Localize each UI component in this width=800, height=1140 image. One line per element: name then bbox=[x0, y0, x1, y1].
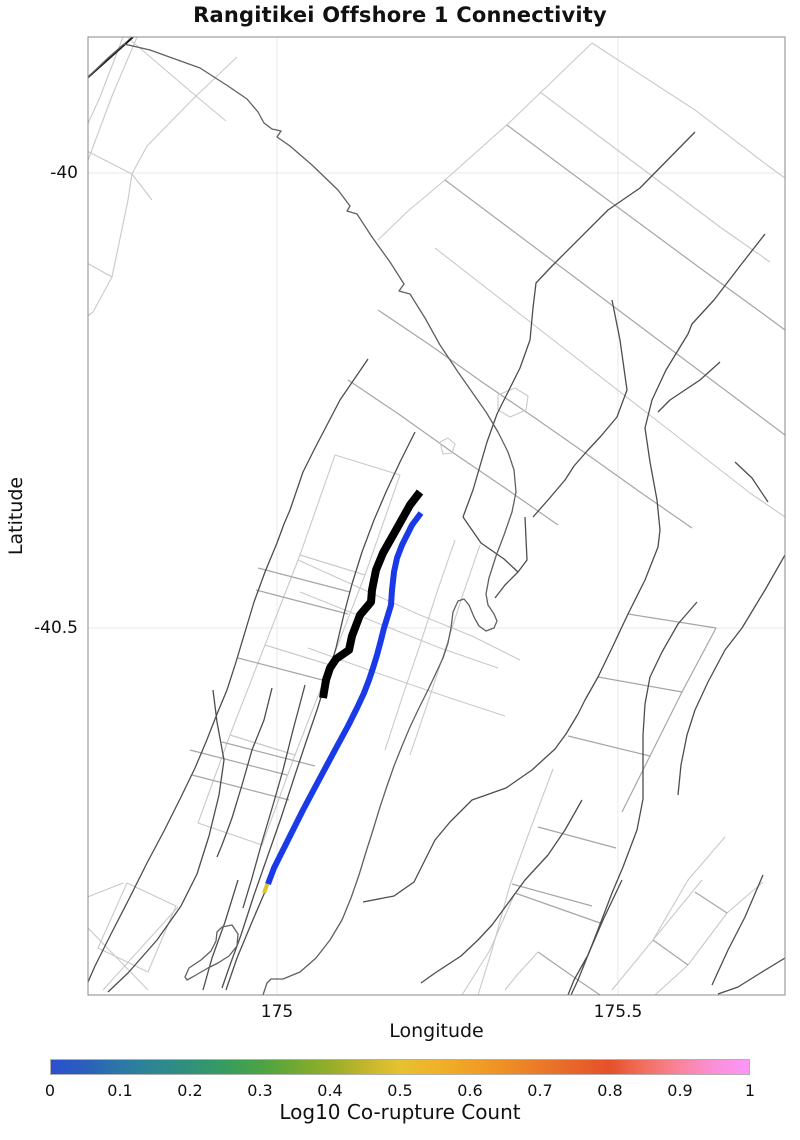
colorbar-tick-label: 0.8 bbox=[580, 1081, 640, 1100]
fault-trace bbox=[230, 645, 330, 755]
fault-trace bbox=[103, 907, 178, 990]
fault-trace bbox=[538, 952, 600, 995]
figure: Rangitikei Offshore 1 Connectivity Latit… bbox=[0, 0, 800, 1140]
fault-trace bbox=[85, 925, 148, 990]
colorbar-tick-label: 0.4 bbox=[300, 1081, 360, 1100]
fault-trace bbox=[507, 125, 785, 330]
fault-trace bbox=[85, 57, 237, 318]
fault-trace bbox=[85, 262, 112, 277]
fault-trace bbox=[495, 517, 527, 598]
colorbar-tick-label: 1 bbox=[720, 1081, 780, 1100]
fault-trace bbox=[128, 38, 226, 121]
fault-trace bbox=[678, 555, 785, 795]
colorbar-tick-label: 0.6 bbox=[440, 1081, 500, 1100]
colorbar-tick-label: 0.2 bbox=[160, 1081, 220, 1100]
fault-trace bbox=[463, 517, 518, 572]
plot-border bbox=[88, 37, 785, 995]
fault-trace bbox=[217, 688, 272, 857]
colorbar-tick-label: 0.1 bbox=[90, 1081, 150, 1100]
fault-trace bbox=[515, 893, 600, 923]
x-tick-label: 175.5 bbox=[578, 1002, 658, 1022]
fault-trace bbox=[718, 958, 785, 994]
colorbar-label: Log10 Co-rupture Count bbox=[50, 1100, 750, 1124]
fault-trace bbox=[98, 883, 176, 972]
fault-trace bbox=[108, 690, 224, 992]
fault-trace bbox=[655, 882, 763, 995]
y-tick-label: -40 bbox=[18, 163, 78, 183]
fault-trace bbox=[628, 614, 716, 628]
fault-trace bbox=[258, 568, 350, 592]
fault-trace bbox=[568, 736, 650, 756]
coastline bbox=[85, 44, 516, 995]
fault-trace bbox=[256, 590, 348, 614]
colorbar-tick-label: 0.7 bbox=[510, 1081, 570, 1100]
colorbar-tick-label: 0 bbox=[20, 1081, 80, 1100]
y-tick-label: -40.5 bbox=[18, 618, 78, 638]
fault-trace bbox=[198, 735, 295, 845]
x-tick-label: 175 bbox=[237, 1002, 317, 1022]
fault-trace bbox=[568, 880, 622, 995]
fault-trace bbox=[85, 150, 152, 200]
fault-trace bbox=[612, 880, 702, 990]
fault-trace bbox=[653, 940, 688, 965]
map-canvas bbox=[0, 0, 800, 1140]
fault-trace bbox=[512, 884, 592, 906]
island-outline bbox=[185, 925, 238, 980]
fault-trace bbox=[348, 380, 558, 525]
fault-trace bbox=[533, 300, 627, 517]
colorbar bbox=[50, 1059, 750, 1075]
fault-trace bbox=[540, 92, 770, 262]
fault-trace bbox=[440, 438, 455, 454]
fault-trace bbox=[658, 362, 720, 412]
x-axis-label: Longitude bbox=[88, 1020, 785, 1042]
colorbar-tick-label: 0.9 bbox=[650, 1081, 710, 1100]
fault-trace bbox=[203, 880, 238, 990]
fault-trace bbox=[190, 750, 287, 775]
fault-trace bbox=[598, 677, 682, 692]
fault-trace bbox=[192, 775, 289, 800]
fault-trace bbox=[462, 893, 515, 995]
colorbar-tick-label: 0.5 bbox=[370, 1081, 430, 1100]
fault-trace bbox=[653, 837, 725, 940]
fault-trace bbox=[505, 952, 538, 990]
fault-trace bbox=[85, 883, 123, 898]
fault-trace bbox=[712, 875, 763, 985]
fault-trace bbox=[592, 43, 785, 178]
fault-trace bbox=[363, 234, 765, 902]
y-axis-label: Latitude bbox=[5, 477, 27, 555]
fault-trace bbox=[538, 827, 616, 848]
fault-trace bbox=[478, 769, 553, 995]
fault-trace bbox=[695, 892, 727, 913]
fault-trace bbox=[622, 628, 716, 812]
fault-trace bbox=[378, 310, 692, 528]
fault-trace bbox=[445, 180, 785, 435]
colorbar-tick-label: 0.3 bbox=[230, 1081, 290, 1100]
fault-trace bbox=[735, 462, 768, 502]
fault-trace bbox=[463, 132, 695, 517]
fault-trace bbox=[571, 602, 697, 995]
